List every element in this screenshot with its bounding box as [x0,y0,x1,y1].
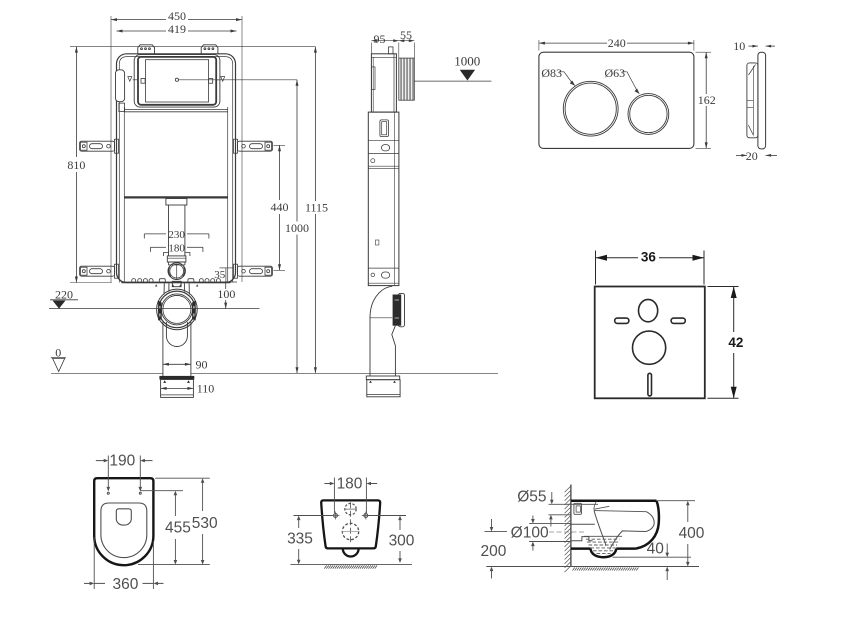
svg-text:20: 20 [746,149,758,163]
svg-text:455: 455 [165,520,191,537]
svg-text:180: 180 [337,475,363,492]
svg-text:440: 440 [271,200,289,214]
svg-text:190: 190 [109,452,135,469]
svg-text:55: 55 [400,28,412,42]
svg-text:810: 810 [67,158,85,172]
svg-text:Ø83: Ø83 [541,66,562,80]
svg-text:162: 162 [698,93,716,107]
svg-text:400: 400 [679,525,705,542]
svg-text:1115: 1115 [305,201,328,215]
svg-text:Ø100: Ø100 [511,524,549,541]
svg-text:240: 240 [608,36,626,50]
svg-text:100: 100 [217,287,235,301]
svg-text:530: 530 [192,515,218,532]
svg-text:220: 220 [55,287,73,301]
svg-text:42: 42 [728,335,743,350]
svg-text:Ø63: Ø63 [605,66,626,80]
svg-text:300: 300 [389,533,415,550]
svg-text:1000: 1000 [285,221,309,235]
svg-text:180: 180 [168,242,185,254]
svg-text:95: 95 [374,32,386,46]
svg-text:90: 90 [196,357,208,371]
svg-text:40: 40 [647,540,665,557]
svg-text:36: 36 [641,250,657,265]
svg-text:230: 230 [168,229,185,241]
svg-text:360: 360 [112,576,138,593]
svg-text:Ø55: Ø55 [517,489,546,506]
svg-text:10: 10 [733,39,745,53]
svg-text:200: 200 [480,543,506,560]
svg-text:110: 110 [197,382,215,396]
svg-text:335: 335 [287,531,313,548]
svg-text:450: 450 [168,9,186,23]
svg-text:0: 0 [55,345,61,359]
svg-text:1000: 1000 [454,54,480,69]
svg-text:419: 419 [168,22,186,36]
